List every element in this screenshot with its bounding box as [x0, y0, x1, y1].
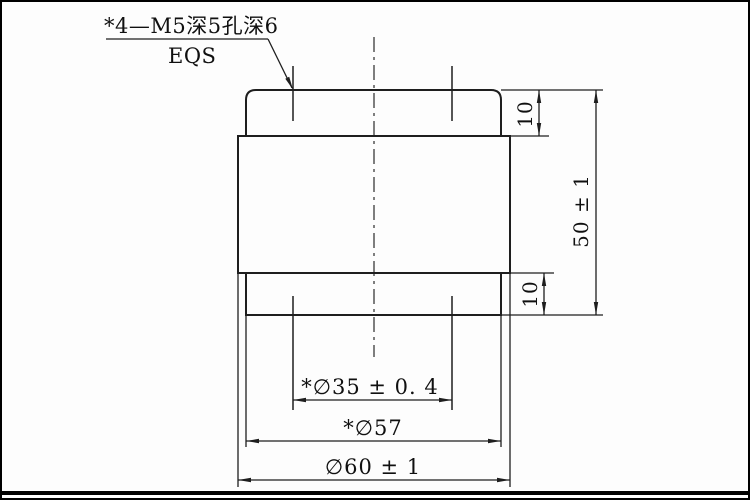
dimension-label: 10 [518, 280, 542, 307]
hole-note-text: *4—M5深5孔深6 [104, 14, 278, 38]
dimension-label: *∅35 ± 0. 4 [301, 375, 439, 399]
arrowhead-icon [594, 302, 598, 315]
dimension-label: *∅57 [343, 416, 403, 440]
arrowhead-icon [542, 273, 546, 286]
arrowhead-icon [542, 302, 546, 315]
hole-lines [293, 66, 452, 410]
arrowhead-icon [285, 77, 293, 90]
dimension-label: 50 ± 1 [569, 174, 593, 248]
hole-note: *4—M5深5孔深6 EQS [104, 14, 293, 90]
extension-lines [238, 90, 603, 487]
arrowhead-icon [497, 478, 510, 482]
arrowhead-icon [439, 398, 452, 402]
dimension-overall-height: 50 ± 1 [569, 90, 598, 315]
arrowhead-icon [238, 478, 251, 482]
dimension-top-boss-height: 10 [513, 90, 541, 136]
note-eqs-text: EQS [168, 44, 216, 68]
dimension-bolt-circle: *∅35 ± 0. 4 [293, 375, 452, 402]
arrowhead-icon [537, 90, 541, 103]
drawing-sheet: 10 50 ± 1 10 *∅35 ± 0. 4 *∅5 [0, 0, 750, 500]
arrowhead-icon [246, 439, 259, 443]
dimension-bottom-boss-height: 10 [518, 273, 546, 315]
dimension-body-diameter: ∅60 ± 1 [238, 455, 510, 482]
arrowhead-icon [488, 439, 501, 443]
arrowhead-icon [537, 123, 541, 136]
dimension-boss-diameter: *∅57 [246, 416, 501, 443]
engineering-drawing: 10 50 ± 1 10 *∅35 ± 0. 4 *∅5 [2, 2, 750, 500]
dimension-label: 10 [513, 100, 537, 127]
arrowhead-icon [594, 90, 598, 103]
dimension-label: ∅60 ± 1 [325, 455, 421, 479]
